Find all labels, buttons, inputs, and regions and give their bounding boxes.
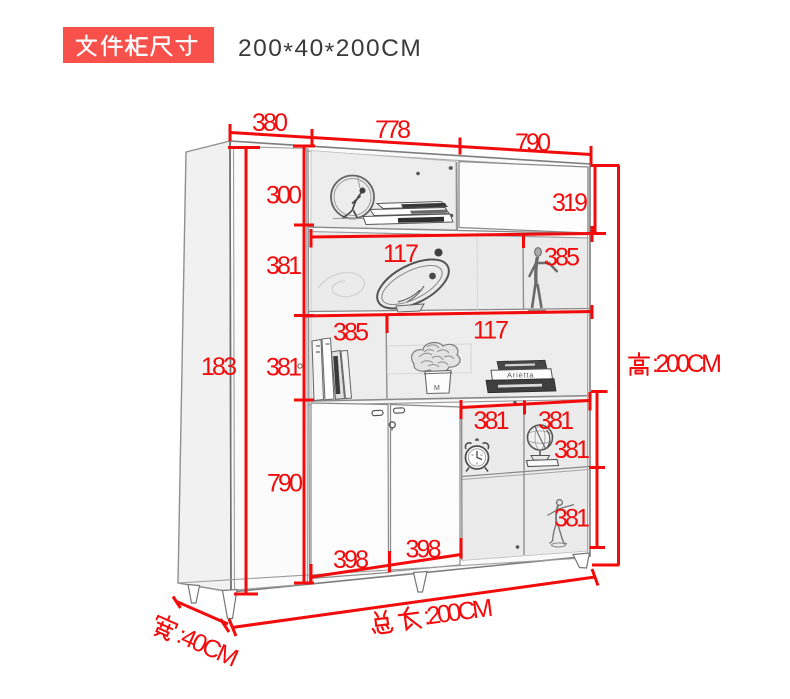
svg-text:Arietta: Arietta xyxy=(507,371,534,380)
svg-text:M: M xyxy=(434,385,440,392)
svg-text:117: 117 xyxy=(473,317,509,345)
svg-text:385: 385 xyxy=(333,319,369,347)
svg-text:385: 385 xyxy=(544,244,580,272)
svg-text:381: 381 xyxy=(554,505,590,533)
svg-text:183: 183 xyxy=(201,353,237,381)
svg-text:380: 380 xyxy=(252,109,288,137)
svg-text:381: 381 xyxy=(266,354,302,382)
svg-text:790: 790 xyxy=(267,470,303,498)
svg-text:398: 398 xyxy=(333,546,369,574)
svg-text:200*40*200CM: 200*40*200CM xyxy=(238,35,422,66)
svg-text:319: 319 xyxy=(552,189,588,217)
svg-text:381: 381 xyxy=(266,252,302,280)
svg-text:381: 381 xyxy=(554,436,590,464)
svg-text:790: 790 xyxy=(515,129,551,157)
svg-text:381: 381 xyxy=(538,407,574,435)
svg-text::200CM: :200CM xyxy=(652,350,722,378)
svg-text:117: 117 xyxy=(383,240,419,268)
svg-text:398: 398 xyxy=(406,536,442,564)
svg-text:381: 381 xyxy=(474,407,510,435)
svg-text:300: 300 xyxy=(266,182,302,210)
svg-text:778: 778 xyxy=(375,116,411,144)
